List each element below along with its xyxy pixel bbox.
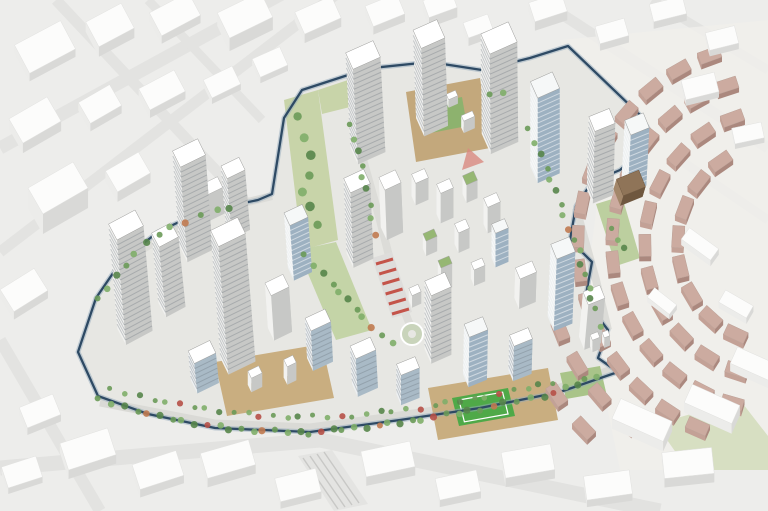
render-canvas <box>0 0 768 511</box>
roundabout-center <box>408 330 416 338</box>
masterplan-aerial-view <box>0 0 768 511</box>
